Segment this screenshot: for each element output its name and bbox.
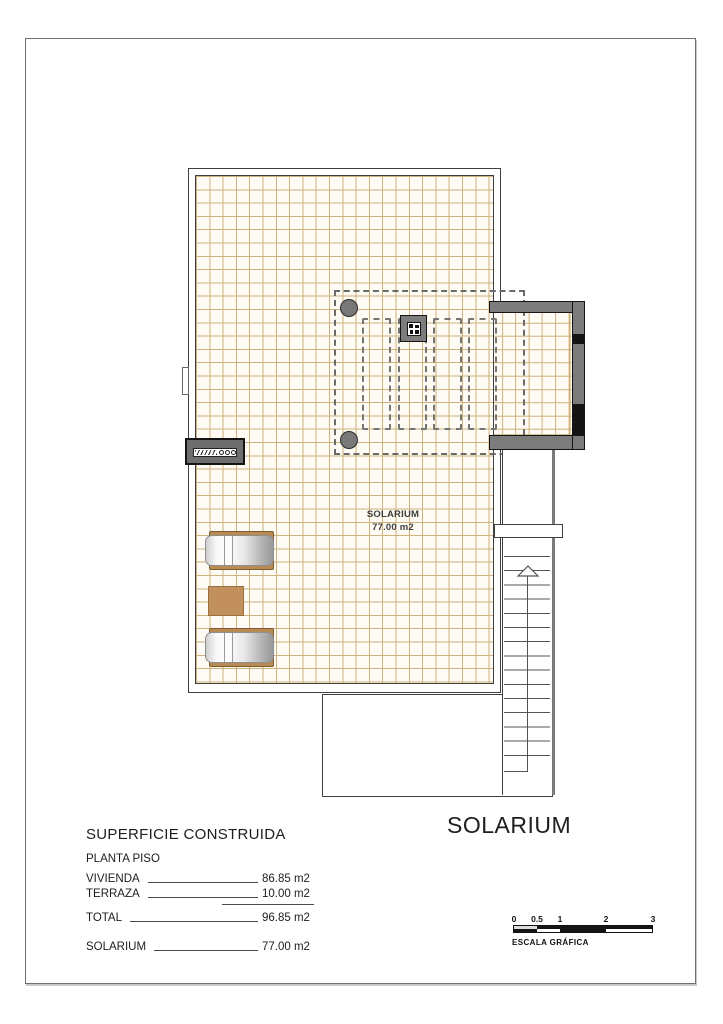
pergola-beam [433, 318, 462, 430]
graphic-scale: 0 0.5 1 2 3 ESCALA GRÁFICA [509, 914, 661, 950]
room-label: SOLARIUM 77.00 m2 [343, 509, 443, 535]
room-label-area: 77.00 m2 [343, 522, 443, 535]
knob-icon [225, 450, 230, 455]
scale-segment [606, 929, 652, 932]
stair-landing [494, 524, 563, 538]
area-table-subheading: PLANTA PISO [86, 853, 314, 865]
table-row: VIVIENDA 86.85 m2 [86, 872, 314, 885]
scale-segment [560, 929, 606, 932]
row-label: TERRAZA [86, 888, 140, 900]
row-label: TOTAL [86, 912, 122, 924]
pergola-beam [468, 318, 497, 430]
room-label-name: SOLARIUM [343, 509, 443, 522]
wall-notch [182, 367, 189, 395]
side-table [208, 586, 244, 616]
drawing-title: SOLARIUM [447, 812, 571, 839]
stair-wall-right [572, 301, 585, 450]
grille-hatch [195, 450, 217, 455]
scale-tick: 0 [512, 914, 517, 924]
scale-caption: ESCALA GRÁFICA [512, 938, 589, 947]
scale-tick: 0.5 [531, 914, 543, 924]
leader-line [154, 950, 258, 951]
fan-icon [407, 322, 421, 336]
wall-unit-grille [193, 448, 237, 457]
knob-icon [231, 450, 236, 455]
area-table-heading: SUPERFICIE CONSTRUIDA [86, 826, 314, 843]
scale-segment [514, 929, 537, 932]
scale-tick: 3 [651, 914, 656, 924]
total-separator [222, 904, 314, 905]
sun-lounger [205, 535, 274, 566]
vent-box [400, 315, 427, 342]
wall-unit [185, 438, 245, 465]
row-value: 96.85 m2 [262, 912, 314, 924]
table-row: SOLARIUM 77.00 m2 [86, 940, 314, 953]
leader-line [148, 897, 258, 898]
wall-jamb [572, 334, 585, 344]
row-label: VIVIENDA [86, 873, 140, 885]
pergola-column-bottom [340, 431, 358, 449]
sun-lounger [205, 632, 274, 663]
leader-line [130, 921, 258, 922]
row-value: 77.00 m2 [262, 941, 314, 953]
stair-wall-bottom [489, 435, 585, 450]
stair-walk-line-start [504, 771, 528, 772]
scale-segment [537, 929, 560, 932]
scale-bar [513, 925, 653, 933]
row-value: 10.00 m2 [262, 888, 314, 900]
row-label: SOLARIUM [86, 941, 146, 953]
leader-line [148, 882, 258, 883]
table-row: TERRAZA 10.00 m2 [86, 887, 314, 900]
stair-walk-line [527, 576, 528, 772]
area-table: SUPERFICIE CONSTRUIDA PLANTA PISO VIVIEN… [86, 826, 314, 955]
wall-jamb [572, 404, 585, 436]
pergola-beam [362, 318, 391, 430]
stairs-up-arrow-icon [516, 565, 540, 577]
row-value: 86.85 m2 [262, 873, 314, 885]
pergola-column-top [340, 299, 358, 317]
stair-wall-top [489, 301, 585, 313]
scale-tick: 2 [604, 914, 609, 924]
knob-icon [219, 450, 224, 455]
scale-tick: 1 [558, 914, 563, 924]
table-row: TOTAL 96.85 m2 [86, 911, 314, 924]
